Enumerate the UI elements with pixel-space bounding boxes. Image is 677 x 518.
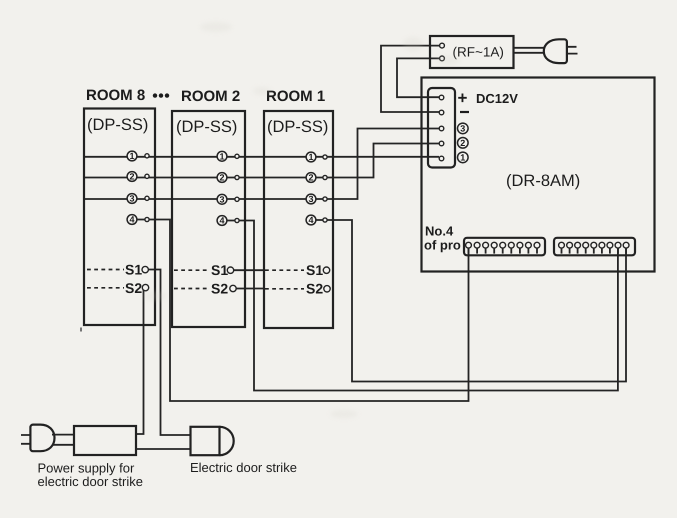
svg-text:1: 1 — [129, 151, 134, 161]
svg-text:2: 2 — [308, 173, 313, 183]
svg-text:electric door strike: electric door strike — [38, 474, 143, 489]
svg-text:Electric door strike: Electric door strike — [190, 460, 297, 475]
svg-text:4: 4 — [308, 215, 313, 225]
svg-text:(DP-SS): (DP-SS) — [87, 116, 148, 134]
svg-text:S2: S2 — [306, 281, 323, 297]
svg-text:S1: S1 — [211, 262, 228, 278]
svg-text:+: + — [458, 89, 468, 108]
svg-text:1: 1 — [219, 151, 224, 161]
svg-text:S2: S2 — [125, 280, 142, 296]
svg-text:3: 3 — [460, 124, 465, 134]
svg-text:DC12V: DC12V — [476, 91, 518, 106]
svg-text:2: 2 — [219, 173, 224, 183]
svg-text:(RF~1A): (RF~1A) — [453, 45, 504, 60]
svg-text:ROOM 1: ROOM 1 — [266, 88, 325, 105]
svg-text:No.4: No.4 — [425, 224, 454, 239]
svg-text:S1: S1 — [306, 262, 323, 278]
svg-text:4: 4 — [129, 215, 134, 225]
svg-text:(DR-8AM): (DR-8AM) — [506, 172, 580, 190]
svg-text:S1: S1 — [125, 262, 142, 278]
svg-text:2: 2 — [460, 138, 465, 148]
svg-text:3: 3 — [308, 194, 313, 204]
svg-text:ROOM 2: ROOM 2 — [181, 88, 240, 105]
svg-text:S2: S2 — [211, 280, 228, 296]
svg-text:ROOM 8: ROOM 8 — [86, 87, 145, 104]
svg-text:2: 2 — [129, 172, 134, 182]
svg-text:(DP-SS): (DP-SS) — [176, 118, 237, 136]
svg-text:of pro: of pro — [424, 238, 461, 253]
svg-text:1: 1 — [308, 152, 313, 162]
svg-text:3: 3 — [219, 194, 224, 204]
svg-text:3: 3 — [129, 194, 134, 204]
svg-text:(DP-SS): (DP-SS) — [267, 118, 328, 136]
svg-text:1: 1 — [460, 153, 465, 163]
svg-text:4: 4 — [219, 216, 224, 226]
